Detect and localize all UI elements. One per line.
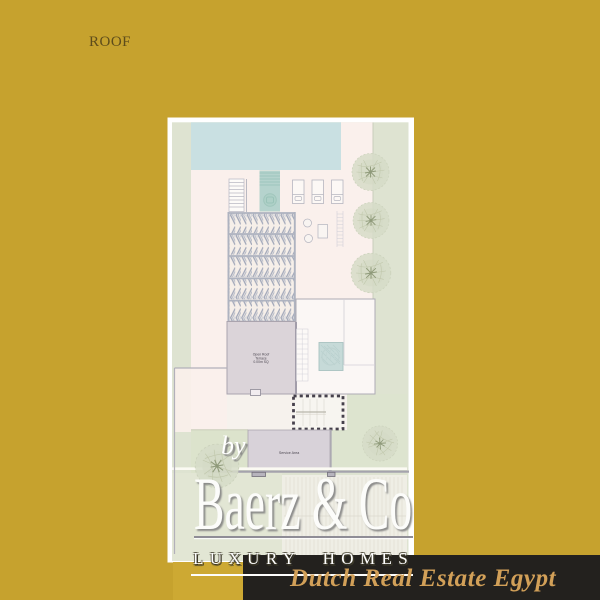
svg-text:0.00m SQ: 0.00m SQ [253, 360, 269, 364]
svg-text:Service Area: Service Area [279, 451, 299, 455]
